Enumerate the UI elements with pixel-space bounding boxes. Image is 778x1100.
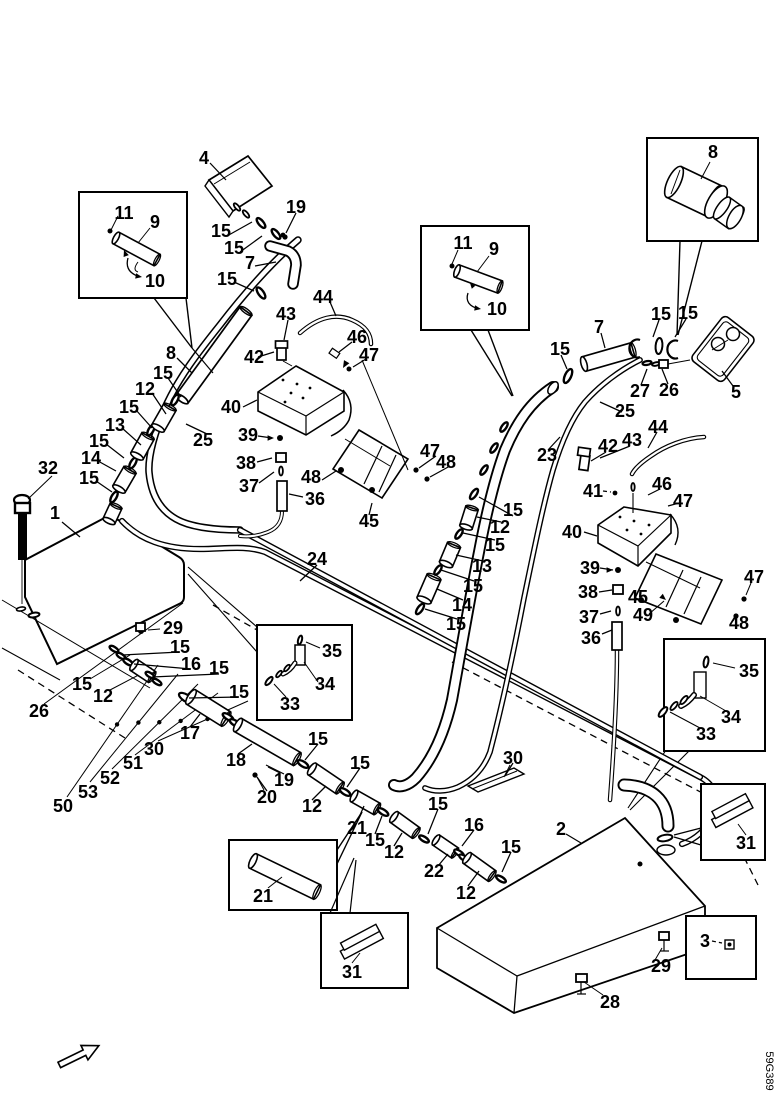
- svg-text:52: 52: [100, 768, 120, 788]
- svg-text:51: 51: [123, 753, 143, 773]
- svg-text:24: 24: [307, 549, 327, 569]
- svg-text:15: 15: [153, 363, 173, 383]
- svg-text:8: 8: [166, 343, 176, 363]
- svg-text:29: 29: [163, 618, 183, 638]
- svg-text:15: 15: [446, 614, 466, 634]
- svg-text:8: 8: [708, 142, 718, 162]
- svg-text:44: 44: [648, 417, 668, 437]
- svg-text:15: 15: [485, 535, 505, 555]
- svg-text:14: 14: [452, 595, 472, 615]
- svg-text:9: 9: [489, 239, 499, 259]
- svg-text:33: 33: [696, 724, 716, 744]
- svg-text:15: 15: [550, 339, 570, 359]
- svg-text:15: 15: [365, 830, 385, 850]
- svg-text:11: 11: [453, 233, 472, 253]
- svg-text:39: 39: [238, 425, 258, 445]
- svg-text:40: 40: [221, 397, 241, 417]
- svg-text:16: 16: [181, 654, 201, 674]
- svg-text:15: 15: [350, 753, 370, 773]
- svg-text:46: 46: [347, 327, 367, 347]
- svg-text:37: 37: [239, 476, 259, 496]
- svg-text:41: 41: [583, 481, 603, 501]
- svg-text:26: 26: [659, 380, 679, 400]
- svg-text:15: 15: [79, 468, 99, 488]
- svg-text:44: 44: [313, 287, 333, 307]
- svg-text:3: 3: [700, 931, 710, 951]
- svg-text:36: 36: [581, 628, 601, 648]
- svg-text:47: 47: [673, 491, 693, 511]
- svg-text:7: 7: [594, 317, 604, 337]
- svg-text:35: 35: [322, 641, 342, 661]
- svg-text:48: 48: [301, 467, 321, 487]
- svg-text:30: 30: [144, 739, 164, 759]
- svg-text:48: 48: [436, 452, 456, 472]
- svg-text:33: 33: [280, 694, 300, 714]
- svg-text:10: 10: [487, 299, 507, 319]
- svg-text:32: 32: [38, 458, 58, 478]
- svg-text:20: 20: [257, 787, 277, 807]
- svg-text:11: 11: [114, 203, 133, 223]
- svg-text:7: 7: [245, 253, 255, 273]
- svg-text:4: 4: [199, 148, 209, 168]
- svg-text:34: 34: [721, 707, 741, 727]
- svg-text:12: 12: [490, 517, 510, 537]
- svg-text:50: 50: [53, 796, 73, 816]
- svg-text:49: 49: [633, 605, 653, 625]
- svg-text:37: 37: [579, 607, 599, 627]
- svg-text:45: 45: [628, 587, 648, 607]
- svg-text:5: 5: [731, 382, 741, 402]
- svg-text:30: 30: [503, 748, 523, 768]
- svg-text:2: 2: [556, 819, 566, 839]
- svg-text:1: 1: [50, 503, 60, 523]
- svg-text:10: 10: [145, 271, 165, 291]
- svg-text:45: 45: [359, 511, 379, 531]
- svg-text:9: 9: [150, 212, 160, 232]
- svg-text:12: 12: [456, 883, 476, 903]
- svg-text:40: 40: [562, 522, 582, 542]
- svg-text:12: 12: [135, 379, 155, 399]
- svg-text:25: 25: [193, 430, 213, 450]
- svg-text:19: 19: [286, 197, 306, 217]
- svg-text:15: 15: [463, 576, 483, 596]
- svg-text:31: 31: [342, 962, 362, 982]
- svg-text:26: 26: [29, 701, 49, 721]
- svg-text:15: 15: [217, 269, 237, 289]
- svg-text:21: 21: [253, 886, 273, 906]
- svg-text:14: 14: [81, 448, 101, 468]
- svg-text:38: 38: [236, 453, 256, 473]
- svg-text:16: 16: [464, 815, 484, 835]
- svg-text:25: 25: [615, 401, 635, 421]
- svg-text:13: 13: [472, 556, 492, 576]
- svg-text:12: 12: [302, 796, 322, 816]
- svg-text:46: 46: [652, 474, 672, 494]
- svg-text:15: 15: [229, 682, 249, 702]
- svg-text:31: 31: [736, 833, 756, 853]
- svg-text:36: 36: [305, 489, 325, 509]
- svg-text:42: 42: [598, 436, 618, 456]
- svg-text:43: 43: [276, 304, 296, 324]
- svg-text:15: 15: [651, 304, 671, 324]
- svg-text:38: 38: [578, 582, 598, 602]
- svg-text:22: 22: [424, 861, 444, 881]
- svg-text:15: 15: [308, 729, 328, 749]
- svg-text:53: 53: [78, 782, 98, 802]
- svg-text:35: 35: [739, 661, 759, 681]
- svg-text:12: 12: [93, 686, 113, 706]
- svg-text:23: 23: [537, 445, 557, 465]
- svg-text:48: 48: [729, 613, 749, 633]
- svg-text:29: 29: [651, 956, 671, 976]
- svg-text:34: 34: [315, 674, 335, 694]
- svg-text:15: 15: [428, 794, 448, 814]
- svg-text:15: 15: [72, 674, 92, 694]
- svg-text:12: 12: [384, 842, 404, 862]
- svg-text:43: 43: [622, 430, 642, 450]
- svg-text:47: 47: [744, 567, 764, 587]
- svg-text:15: 15: [678, 303, 698, 323]
- svg-text:47: 47: [359, 345, 379, 365]
- svg-text:15: 15: [501, 837, 521, 857]
- svg-text:59G389: 59G389: [763, 1051, 775, 1090]
- svg-text:42: 42: [244, 347, 264, 367]
- svg-text:15: 15: [209, 658, 229, 678]
- svg-text:39: 39: [580, 558, 600, 578]
- svg-text:15: 15: [224, 238, 244, 258]
- svg-text:28: 28: [600, 992, 620, 1012]
- svg-text:15: 15: [119, 397, 139, 417]
- svg-text:18: 18: [226, 750, 246, 770]
- svg-text:27: 27: [630, 381, 650, 401]
- svg-text:17: 17: [180, 723, 200, 743]
